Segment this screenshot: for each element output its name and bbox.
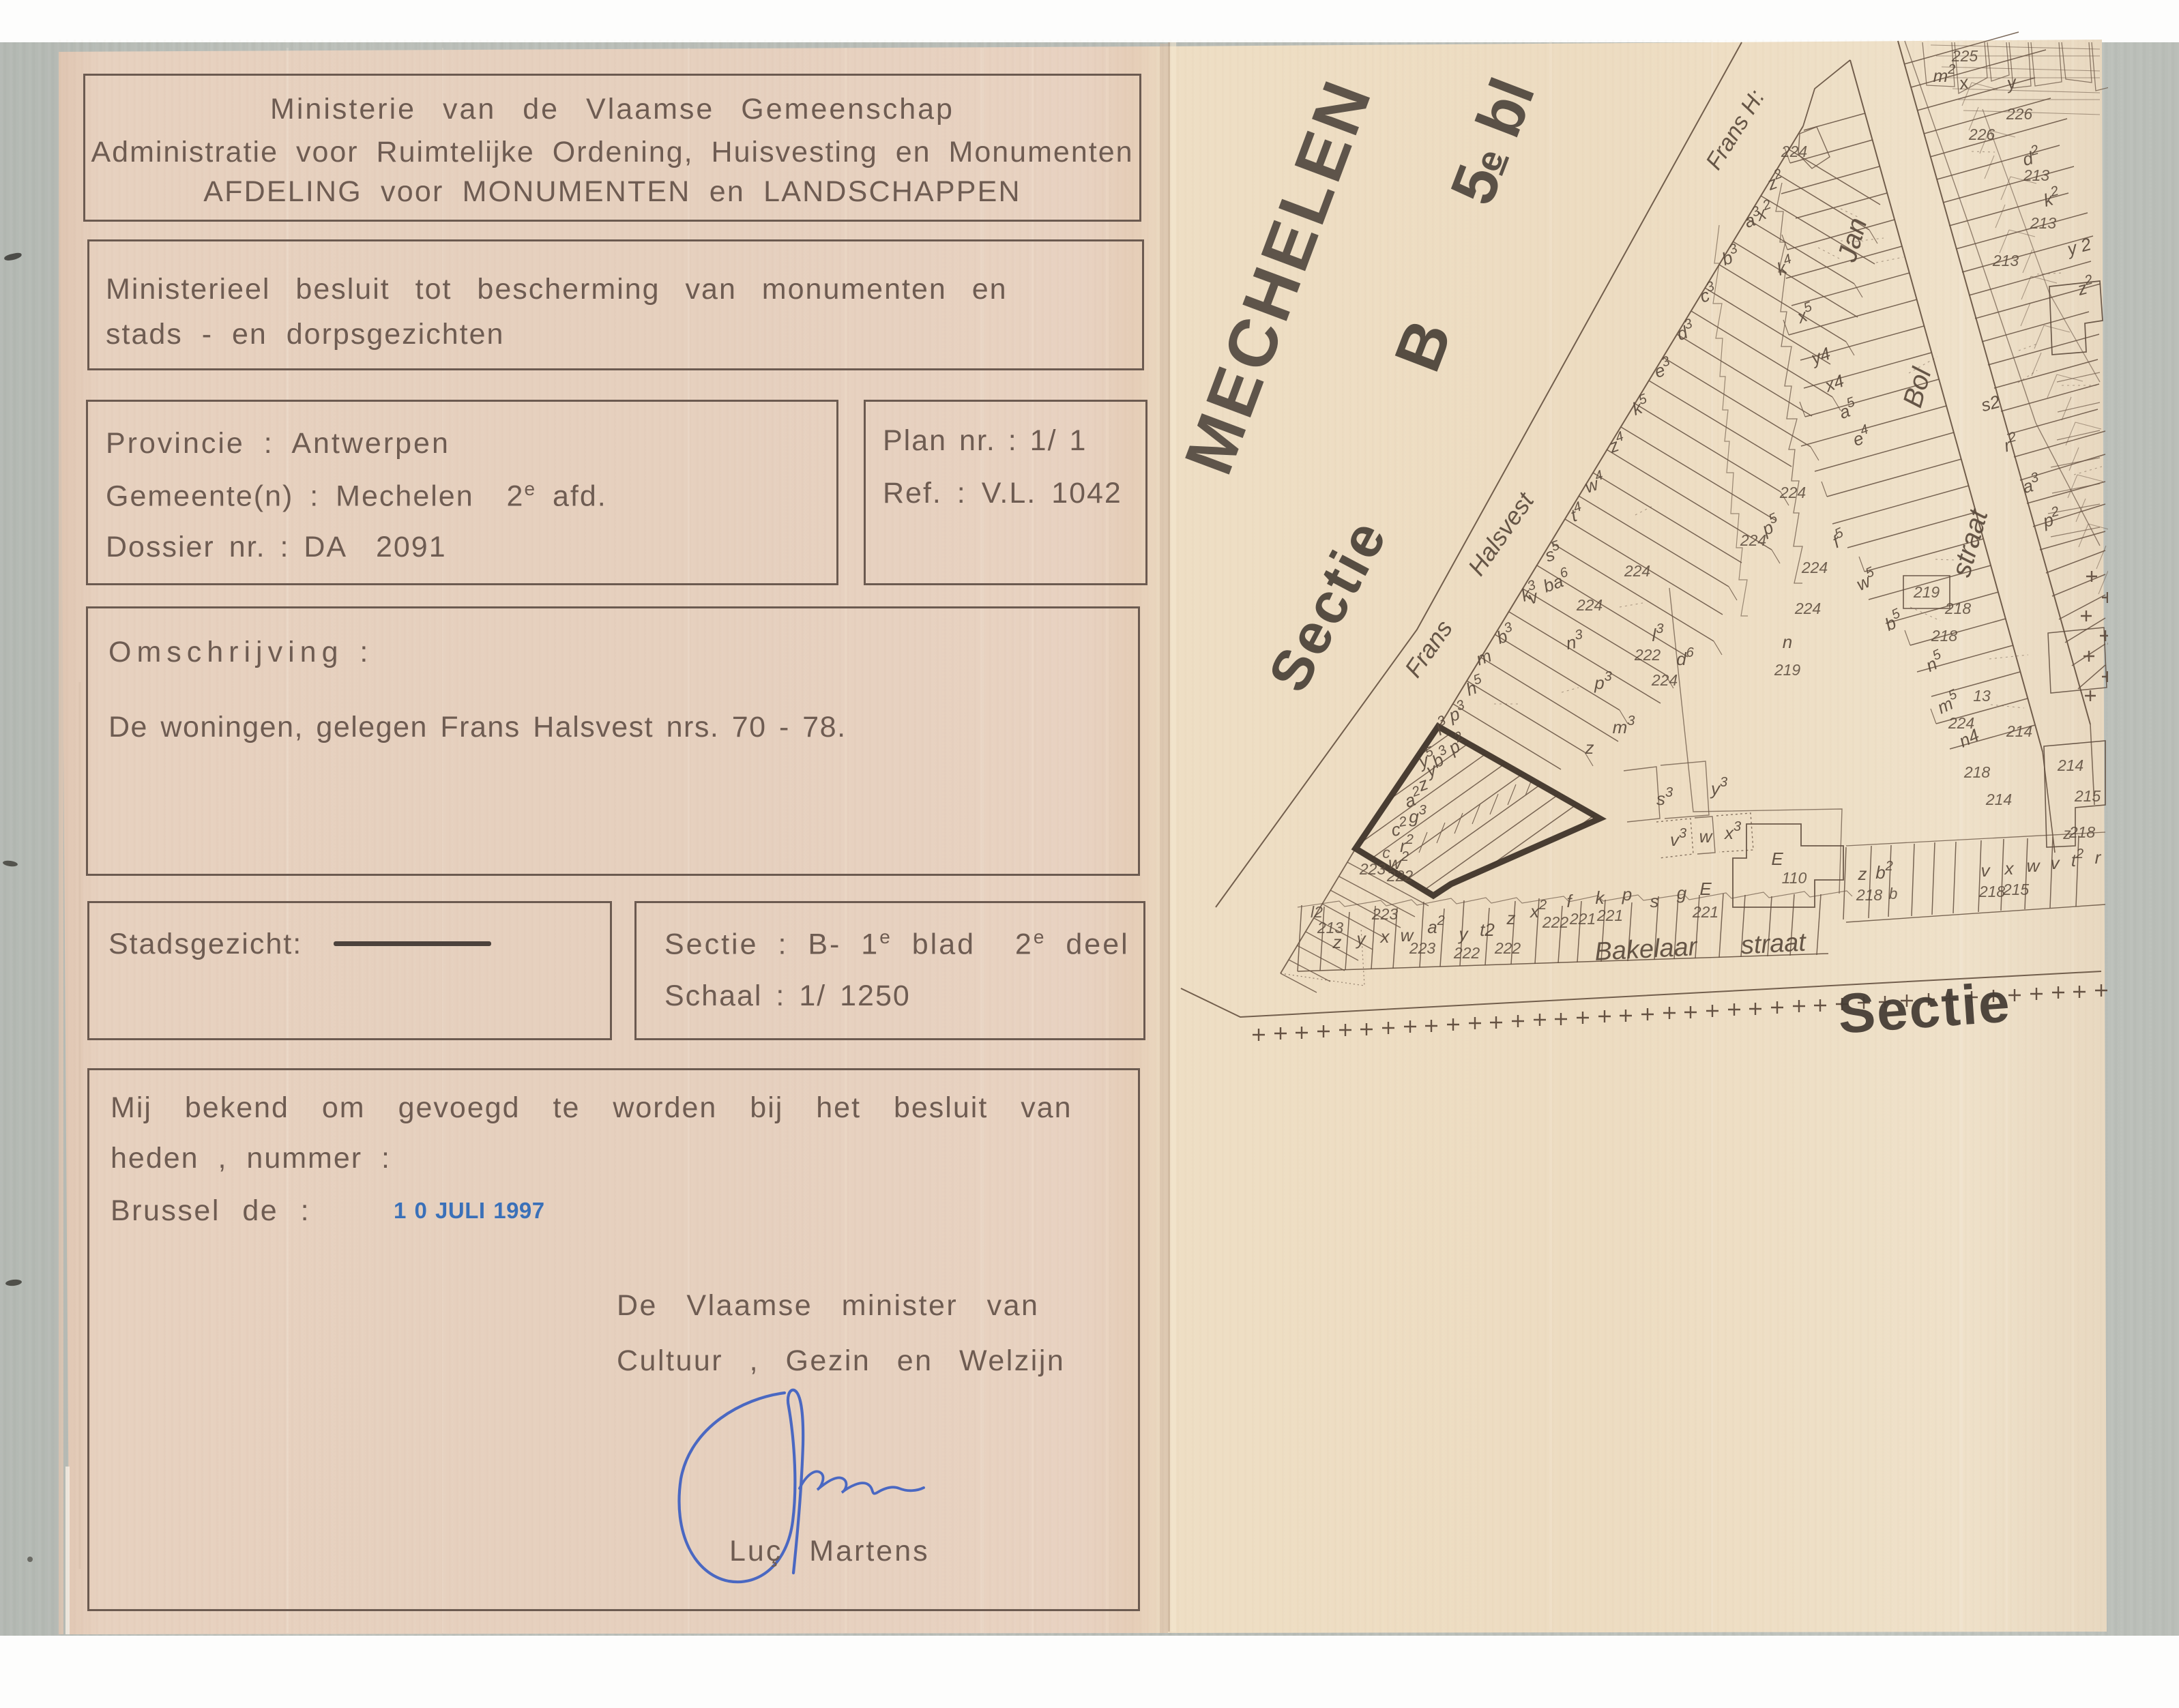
svg-text:s3: s3 (1656, 785, 1673, 809)
svg-text:l2: l2 (1311, 903, 1323, 921)
svg-text:d6: d6 (1676, 645, 1694, 669)
svg-text:222: 222 (1542, 913, 1569, 931)
svg-text:221: 221 (1692, 903, 1719, 921)
svg-text:k: k (1596, 887, 1606, 908)
svg-text:213: 213 (1317, 919, 1344, 937)
svg-text:y3: y3 (1710, 775, 1727, 799)
svg-text:p3: p3 (1594, 669, 1612, 693)
svg-text:z: z (1858, 864, 1867, 884)
svg-text:x5: x5 (1792, 299, 1817, 327)
svg-text:y: y (1458, 924, 1469, 944)
svg-text:214: 214 (2057, 756, 2083, 774)
svg-text:z2: z2 (1763, 166, 1787, 194)
svg-text:224: 224 (1779, 484, 1806, 501)
svg-text:214: 214 (2006, 722, 2032, 740)
svg-text:v: v (1981, 860, 1991, 881)
svg-text:n: n (1783, 632, 1792, 652)
svg-text:218: 218 (1963, 763, 1991, 781)
svg-text:s: s (1650, 891, 1659, 911)
svg-text:214: 214 (1985, 791, 2012, 808)
svg-text:a3: a3 (2019, 470, 2043, 497)
svg-text:z: z (1506, 908, 1516, 928)
svg-text:z4: z4 (1605, 429, 1629, 457)
svg-text:m5: m5 (1933, 686, 1963, 718)
svg-text:m2: m2 (1933, 62, 1956, 86)
svg-text:219: 219 (1774, 661, 1801, 679)
svg-text:Jan: Jan (1832, 214, 1873, 265)
svg-text:E: E (1699, 879, 1712, 899)
svg-text:224: 224 (1624, 562, 1650, 580)
svg-text:b2: b2 (1875, 859, 1893, 883)
svg-text:222: 222 (1386, 867, 1414, 885)
svg-text:g3: g3 (1409, 803, 1427, 827)
svg-text:Bakelaar: Bakelaar (1594, 932, 1698, 967)
svg-text:213: 213 (2030, 214, 2057, 232)
svg-text:n3: n3 (1564, 627, 1585, 653)
svg-text:b3: b3 (1493, 619, 1517, 648)
svg-text:222: 222 (1453, 944, 1480, 962)
svg-text:z2: z2 (2074, 272, 2096, 299)
svg-text:215: 215 (2074, 787, 2101, 805)
svg-text:224: 224 (1948, 714, 1974, 732)
svg-text:E: E (1771, 849, 1783, 869)
svg-text:Bol: Bol (1897, 364, 1937, 411)
svg-text:v: v (1525, 586, 1542, 608)
svg-text:d3: d3 (1673, 316, 1697, 344)
svg-text:k4: k4 (1773, 252, 1797, 280)
svg-text:f5: f5 (1828, 525, 1849, 552)
svg-text:219: 219 (1913, 583, 1940, 601)
svg-text:g: g (1677, 883, 1687, 903)
svg-text:w4: w4 (1581, 468, 1608, 497)
svg-text:x3: x3 (1723, 819, 1741, 843)
svg-text:221: 221 (1596, 907, 1623, 924)
svg-text:223: 223 (1359, 860, 1386, 878)
svg-text:k2: k2 (2041, 183, 2062, 211)
svg-text:224: 224 (1576, 596, 1603, 614)
svg-text:e3: e3 (1650, 353, 1675, 382)
svg-text:b: b (1889, 885, 1898, 902)
svg-text:s2: s2 (1979, 391, 2003, 415)
svg-text:13: 13 (1973, 687, 1991, 705)
svg-text:224: 224 (1781, 143, 1807, 160)
svg-text:223: 223 (1371, 905, 1399, 923)
svg-text:y: y (1356, 928, 1367, 949)
svg-text:z: z (1585, 737, 1594, 758)
svg-text:ba6: ba6 (1539, 565, 1573, 597)
svg-text:213: 213 (2023, 166, 2050, 184)
svg-text:r: r (2095, 847, 2102, 868)
svg-text:m3: m3 (1613, 713, 1635, 737)
svg-text:222: 222 (1494, 939, 1521, 957)
svg-text:w: w (1699, 826, 1714, 846)
svg-text:t2: t2 (1480, 919, 1495, 940)
svg-text:226: 226 (1968, 126, 1995, 143)
svg-text:226: 226 (2006, 105, 2033, 123)
svg-text:n5: n5 (1921, 647, 1948, 676)
svg-text:b5: b5 (1880, 606, 1907, 635)
svg-text:v3: v3 (1670, 826, 1686, 850)
svg-text:224: 224 (1740, 531, 1766, 549)
svg-text:v: v (2051, 853, 2061, 873)
svg-text:h5: h5 (1462, 671, 1487, 700)
svg-text:straat: straat (1740, 928, 1808, 960)
svg-text:221: 221 (1569, 910, 1596, 928)
svg-text:218: 218 (2068, 823, 2096, 841)
svg-text:y4: y4 (1807, 343, 1833, 369)
svg-text:x: x (2004, 858, 2015, 879)
svg-text:x: x (1379, 926, 1390, 947)
svg-text:r2: r2 (2001, 429, 2020, 456)
svg-text:218: 218 (1931, 627, 1958, 645)
svg-text:c: c (1382, 844, 1390, 862)
svg-text:straat: straat (1946, 505, 1994, 580)
svg-text:218: 218 (1944, 600, 1972, 617)
svg-text:215: 215 (2002, 881, 2030, 898)
svg-text:225: 225 (1951, 47, 1978, 65)
svg-text:110: 110 (1782, 869, 1807, 887)
svg-text:224: 224 (1801, 559, 1828, 576)
svg-text:223: 223 (1409, 939, 1436, 957)
svg-text:s5: s5 (1541, 538, 1565, 565)
svg-text:224: 224 (1651, 671, 1678, 689)
svg-text:222: 222 (1634, 646, 1661, 664)
svg-text:218: 218 (1978, 883, 2006, 900)
svg-text:k5: k5 (1628, 391, 1652, 419)
svg-text:218: 218 (1856, 886, 1883, 904)
svg-text:Halsvest: Halsvest (1462, 486, 1540, 580)
svg-text:p: p (1622, 884, 1632, 904)
svg-text:w: w (2027, 855, 2041, 876)
svg-text:a5: a5 (1835, 394, 1860, 423)
svg-text:213: 213 (1992, 252, 2019, 269)
svg-text:e4: e4 (1849, 422, 1873, 450)
svg-text:p2: p2 (2039, 504, 2063, 532)
svg-text:224: 224 (1794, 600, 1821, 617)
